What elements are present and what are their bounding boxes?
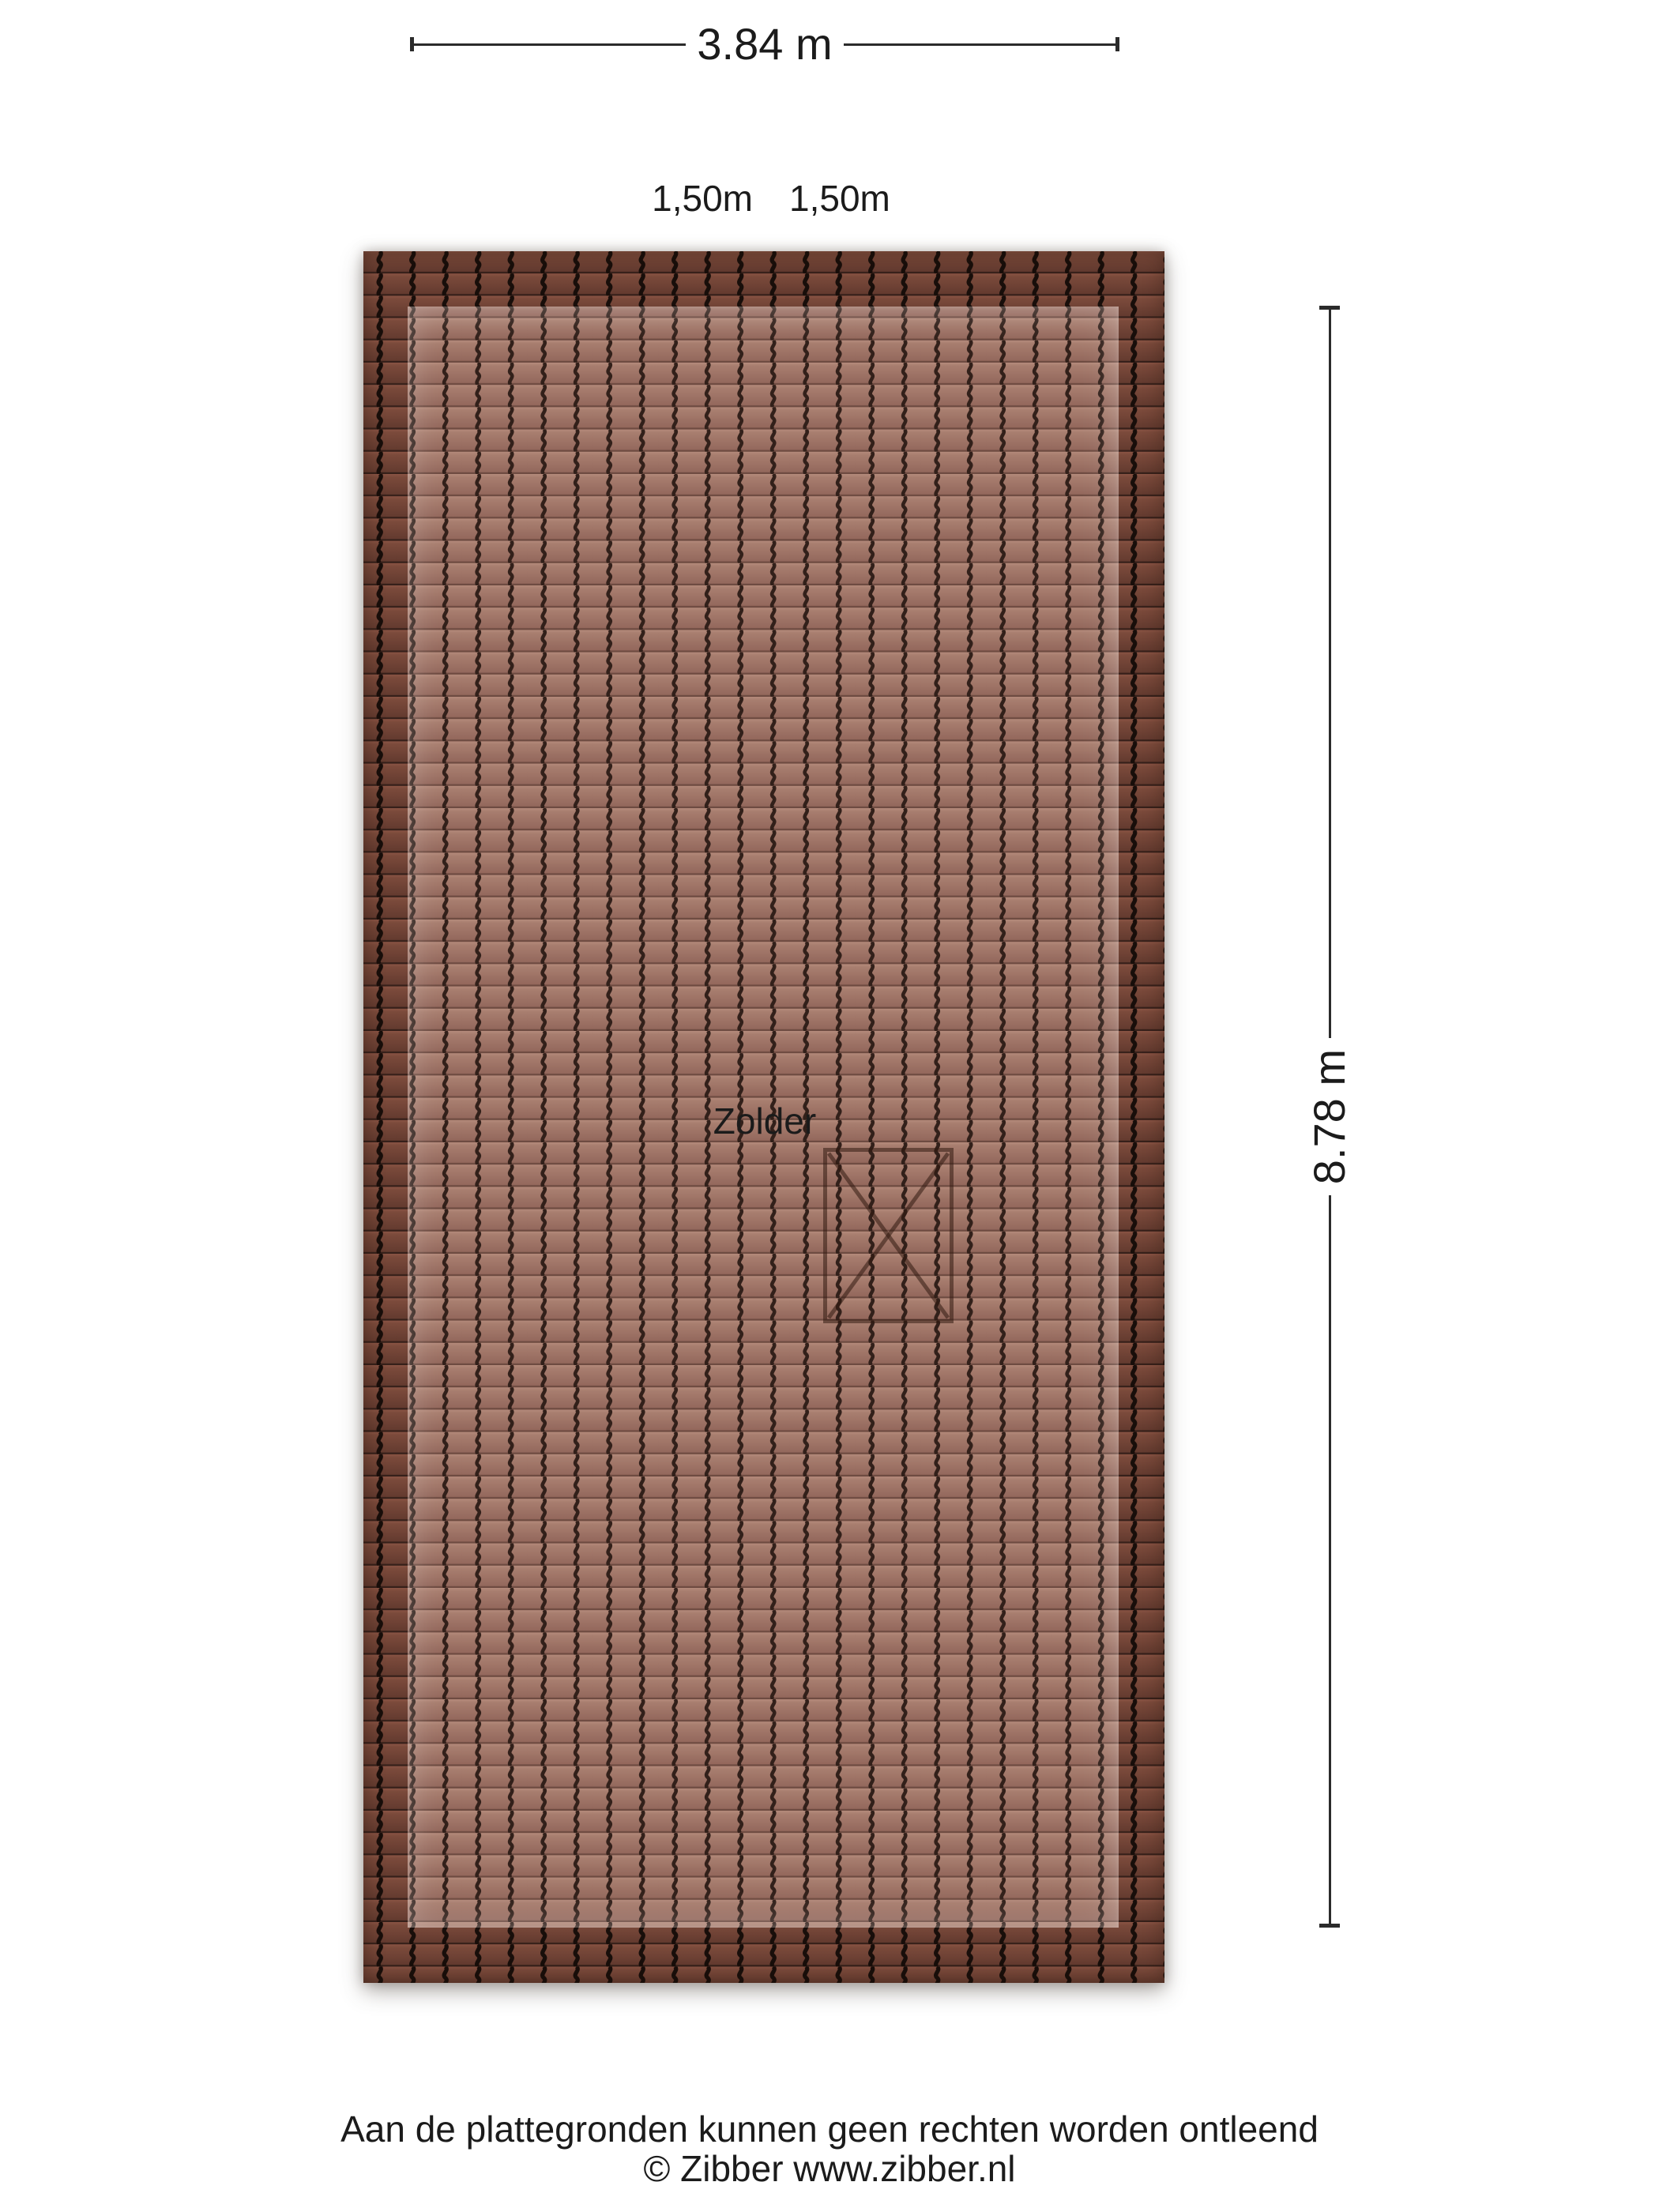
height-dimension-label: 8.78 m [1307,1049,1352,1184]
roof-plan: Zolder [363,251,1164,1983]
dimension-line-left [414,43,686,46]
room-label-zolder: Zolder [713,1103,816,1139]
dimension-line-top [1329,310,1331,1038]
stair-opening-x-icon [823,1148,954,1323]
slope-width-labels: 1,50m 1,50m [652,180,890,216]
width-dimension: 3.84 m [410,33,1119,55]
slope-label-right: 1,50m [789,180,890,216]
copyright-text: © Zibber www.zibber.nl [0,2149,1659,2188]
dimension-line-right [844,43,1115,46]
dimension-tick-bottom-icon [1319,1924,1340,1928]
dimension-tick-right-icon [1115,37,1119,51]
width-dimension-label: 3.84 m [686,22,843,66]
disclaimer-text: Aan de plattegronden kunnen geen rechten… [0,2109,1659,2149]
floorplan-page: 3.84 m 1,50m 1,50m [0,0,1659,2212]
height-dimension: 8.78 m [1313,306,1346,1928]
dimension-line-bottom [1329,1195,1331,1924]
slope-label-left: 1,50m [652,180,753,216]
